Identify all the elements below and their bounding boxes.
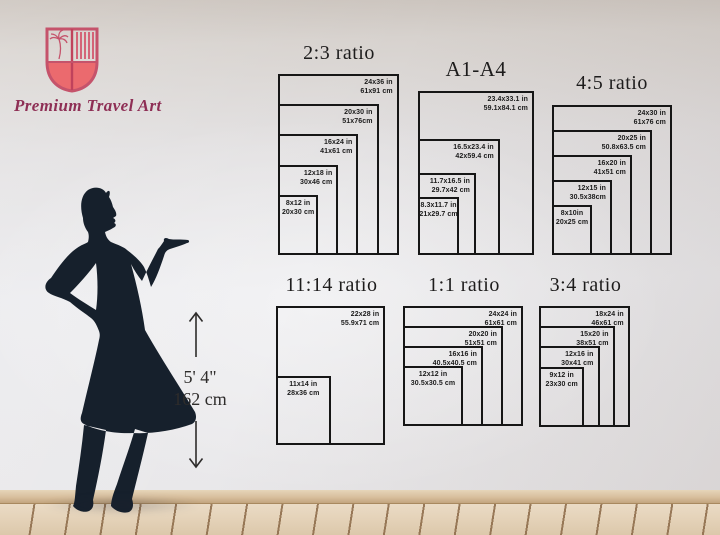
chart-title: 2:3 ratio [303,42,375,65]
size-chart-a1-a4: A1-A4 23.4x33.1 in59.1x84.1 cm16.5x23.4 … [418,89,534,255]
size-label: 9x12 in23x30 cm [535,371,588,389]
floor-shadow [42,495,202,515]
size-label: 22x28 in55.9x71 cm [341,310,379,328]
size-label: 8x10in20x25 cm [548,209,596,227]
size-rect: 8x12 in20x30 cm [278,195,318,255]
size-label: 23.4x33.1 in59.1x84.1 cm [484,95,528,113]
chart-title: 11:14 ratio [286,274,378,297]
size-label: 12x12 in30.5x30.5 cm [399,370,467,388]
size-label: 11.7x16.5 in29.7x42 cm [430,177,470,195]
size-rect: 8x10in20x25 cm [552,205,592,255]
palm-tree-icon [50,30,68,59]
height-label: 5' 4" 162 cm [158,366,242,410]
size-label: 24x30 in61x76 cm [634,109,666,127]
size-chart-2-3: 2:3 ratio 24x36 in61x91 cm20x30 in51x76c… [278,74,400,255]
size-label: 16.5x23.4 in42x59.4 cm [453,143,494,161]
height-cm: 162 cm [158,388,242,410]
size-chart-1-1: 1:1 ratio 24x24 in61x61 cm20x20 in51x51 … [403,306,525,426]
brand-name: Premium Travel Art [14,96,184,116]
size-label: 24x36 in61x91 cm [360,78,392,96]
size-chart-4-5: 4:5 ratio 24x30 in61x76 cm20x25 in50.8x6… [552,104,672,255]
chart-title: 1:1 ratio [428,274,500,297]
down-arrow-icon [190,421,203,467]
size-rect: 8.3x11.7 in21x29.7 cm [418,197,459,255]
up-arrow-icon [190,313,203,357]
size-label: 12x18 in30x46 cm [300,169,332,187]
chart-title: 4:5 ratio [576,72,648,95]
size-chart-3-4: 3:4 ratio 18x24 in46x61 cm15x20 in38x51 … [539,306,632,427]
chart-title: 3:4 ratio [550,274,622,297]
size-label: 8x12 in20x30 cm [274,199,322,217]
size-rect: 12x12 in30.5x30.5 cm [403,366,463,426]
size-label: 8.3x11.7 in21x29.7 cm [414,201,463,219]
size-rect: 9x12 in23x30 cm [539,367,584,428]
size-label: 20x25 in50.8x63.5 cm [602,134,646,152]
size-label: 16x20 in41x51 cm [594,159,626,177]
size-label: 11x14 in28x36 cm [272,380,335,398]
size-label: 16x24 in41x61 cm [320,138,352,156]
size-chart-11-14: 11:14 ratio 22x28 in55.9x71 cm11x14 in28… [276,306,387,445]
size-label: 12x15 in30.5x38cm [570,184,606,202]
size-rect: 11x14 in28x36 cm [276,376,331,446]
size-label: 20x30 in51x76cm [342,108,372,126]
shield-logo-icon [44,26,100,94]
height-feet: 5' 4" [158,366,242,388]
woman-silhouette [25,150,200,515]
chart-title: A1-A4 [446,57,507,82]
